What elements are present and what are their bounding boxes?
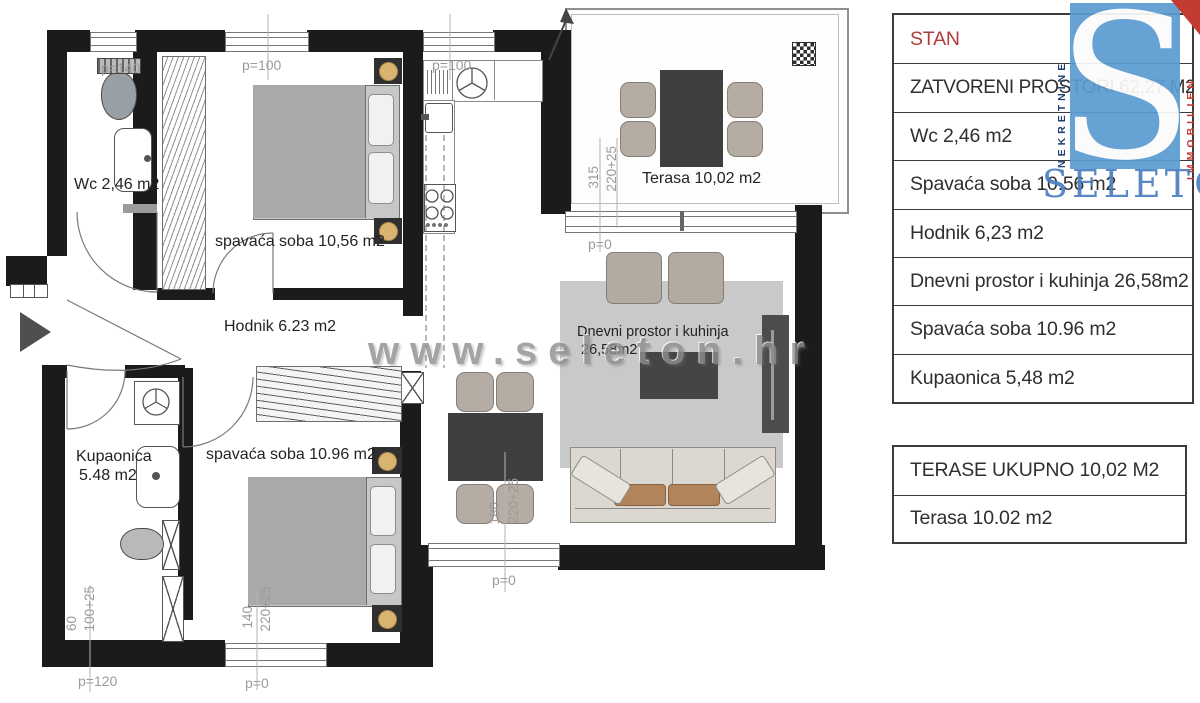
dim-height: 180 xyxy=(487,502,502,525)
dim-height: 60 xyxy=(64,616,79,631)
table-row: Terasa 10.02 m2 xyxy=(894,495,1185,543)
room-label-terrace: Terasa 10,02 m2 xyxy=(642,170,761,188)
table-row: Kupaonica 5,48 m2 xyxy=(894,354,1192,402)
dim-height: 220+25 xyxy=(258,586,273,631)
table-row: Wc 2,46 m2 xyxy=(894,112,1192,160)
table-row: Spavaća soba 10.96 m2 xyxy=(894,305,1192,353)
room-label-wc: Wc 2,46 m2 xyxy=(74,176,159,194)
terrace-table-panel: TERASE UKUPNO 10,02 M2 Terasa 10.02 m2 xyxy=(892,445,1187,544)
table-row: Dnevni prostor i kuhinja 26,58m2 xyxy=(894,257,1192,305)
room-label-bedroom2: spavaća soba 10.96 m2 xyxy=(206,446,376,464)
watermark-text: www.seleton.hr xyxy=(368,329,816,374)
north-arrow-icon xyxy=(549,8,574,60)
dim-height: 220+25 xyxy=(604,146,619,191)
dim-parapet: p=0 xyxy=(245,675,269,691)
floorplan-page: Wc 2,46 m2 spavaća soba 10,56 m2 Hodnik … xyxy=(0,0,1200,703)
dim-parapet: p=140 xyxy=(101,60,140,76)
dim-height: 140 xyxy=(240,606,255,629)
dim-height: 315 xyxy=(586,166,601,189)
dim-parapet: p=120 xyxy=(78,673,117,689)
dim-parapet: p=0 xyxy=(492,572,516,588)
dim-height: 100+25 xyxy=(82,586,97,631)
dim-height: 220+25 xyxy=(506,478,521,523)
dim-parapet: p=0 xyxy=(588,236,612,252)
areas-table: STAN ZATVORENI PROSTORI 62,27 M2 Wc 2,46… xyxy=(892,13,1194,404)
table-row: Hodnik 6,23 m2 xyxy=(894,209,1192,257)
room-label-bathroom: Kupaonica xyxy=(76,448,152,466)
room-label-bathroom-area: 5.48 m2 xyxy=(79,467,137,485)
table-row-terrace-total: TERASE UKUPNO 10,02 M2 xyxy=(894,447,1185,495)
room-label-bedroom1: spavaća soba 10,56 m2 xyxy=(215,233,385,251)
room-label-hallway: Hodnik 6.23 m2 xyxy=(224,318,336,336)
dim-parapet: p=100 xyxy=(432,57,471,73)
dim-parapet: p=100 xyxy=(242,57,281,73)
table-row-stan: STAN xyxy=(894,15,1192,63)
table-row: Spavaća soba 10.56 m2 xyxy=(894,160,1192,208)
table-row-total: ZATVORENI PROSTORI 62,27 M2 xyxy=(894,63,1192,111)
